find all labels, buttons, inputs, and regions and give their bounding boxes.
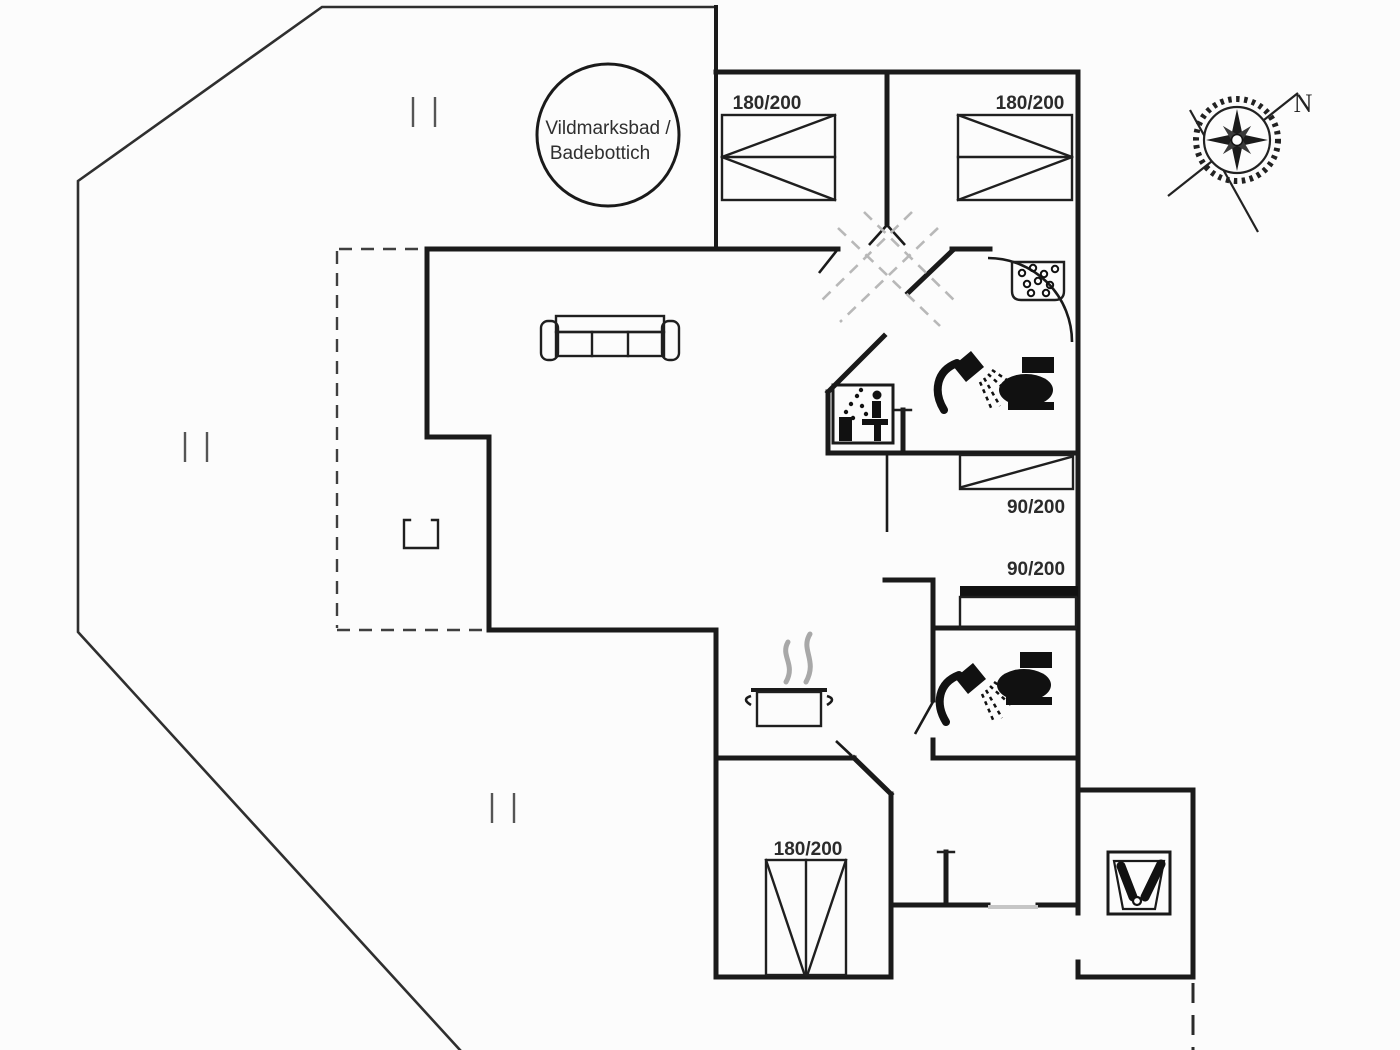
bedroom1-door-leaf: [819, 249, 838, 273]
floor-plan-svg: Vildmarksbad / Badebottich N: [0, 0, 1400, 1050]
steam-swirl: [786, 642, 790, 682]
bedroom-3: 180/200: [766, 839, 846, 975]
hot-tub-label-line1: Vildmarksbad /: [545, 118, 671, 139]
shower-icon: [938, 351, 1016, 410]
bed-headboard: [960, 586, 1078, 597]
room-3-beds: 90/200 90/200: [960, 455, 1078, 628]
bathroom-2: [940, 652, 1052, 722]
steam-swirl: [806, 634, 810, 682]
window-marks: [185, 97, 514, 823]
bed-single-icon: [960, 597, 1076, 628]
boots-tray-icon: [1108, 852, 1170, 914]
bedroom3-door-leaf: [836, 741, 852, 756]
compass-hub: [1232, 135, 1243, 146]
room3-upper-bed-label: 90/200: [1007, 497, 1065, 518]
annex-walls: [1078, 790, 1193, 977]
hot-tub: Vildmarksbad / Badebottich: [537, 64, 679, 206]
floor-plan-canvas: Vildmarksbad / Badebottich N: [0, 0, 1400, 1050]
fireplace-icon: [404, 520, 438, 548]
room3-lower-bed-label: 90/200: [1007, 559, 1065, 580]
hot-tub-label-line2: Badebottich: [550, 143, 650, 164]
sofa-icon: [541, 316, 679, 360]
bedroom-1: 180/200: [722, 93, 835, 200]
compass-rose: N: [1168, 89, 1313, 232]
hall-door-leaf-left: [869, 225, 887, 245]
toilet-icon: [999, 357, 1054, 410]
bedroom-2: 180/200: [958, 93, 1072, 200]
cooking-pot-icon: [746, 634, 832, 726]
compass-north-label: N: [1294, 89, 1313, 118]
sauna-icon: [833, 385, 893, 443]
bedroom3-bed-label: 180/200: [774, 839, 843, 860]
toilet-icon: [997, 652, 1052, 705]
annex: [1108, 852, 1170, 914]
house-walls: [427, 7, 1078, 977]
bedroom1-bed-label: 180/200: [733, 93, 802, 114]
bathroom2-door-leaf: [915, 700, 934, 734]
bedroom2-bed-label: 180/200: [996, 93, 1065, 114]
